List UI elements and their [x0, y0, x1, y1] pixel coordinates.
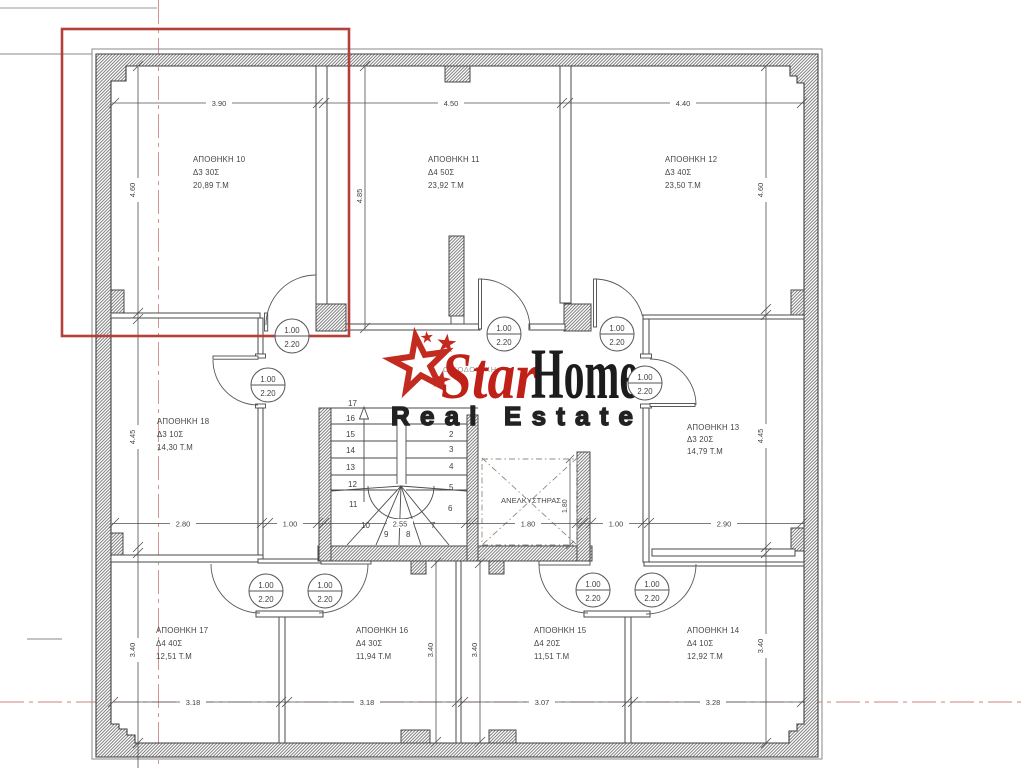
svg-text:Δ3 20Σ: Δ3 20Σ	[687, 435, 713, 444]
svg-text:2.20: 2.20	[637, 387, 653, 396]
svg-text:3.40: 3.40	[426, 643, 435, 657]
svg-text:5: 5	[449, 483, 454, 492]
svg-text:2: 2	[449, 430, 454, 439]
svg-text:1.00: 1.00	[585, 580, 601, 589]
svg-text:1.00: 1.00	[637, 373, 653, 382]
svg-text:Δ3 40Σ: Δ3 40Σ	[665, 168, 691, 177]
svg-text:7: 7	[431, 521, 436, 530]
svg-text:2.20: 2.20	[317, 595, 333, 604]
svg-text:Δ3 10Σ: Δ3 10Σ	[157, 430, 183, 439]
svg-text:2.20: 2.20	[496, 338, 512, 347]
svg-text:14,30 T.M: 14,30 T.M	[157, 443, 193, 452]
svg-text:6: 6	[448, 504, 453, 513]
svg-text:4.85: 4.85	[355, 189, 364, 203]
svg-text:2.80: 2.80	[176, 520, 190, 529]
svg-text:12,51 T.M: 12,51 T.M	[156, 652, 192, 661]
svg-text:14: 14	[346, 446, 355, 455]
svg-text:ΑΠΟΘΗΚΗ 11: ΑΠΟΘΗΚΗ 11	[428, 155, 480, 164]
svg-text:1.00: 1.00	[496, 324, 512, 333]
svg-text:1.80: 1.80	[521, 520, 535, 529]
svg-text:3.40: 3.40	[756, 639, 765, 653]
svg-text:ΑΠΟΘΗΚΗ 17: ΑΠΟΘΗΚΗ 17	[156, 626, 208, 635]
svg-text:3.18: 3.18	[360, 698, 374, 707]
svg-text:15: 15	[346, 430, 355, 439]
svg-text:3.28: 3.28	[706, 698, 720, 707]
svg-text:ΑΠΟΘΗΚΗ 16: ΑΠΟΘΗΚΗ 16	[356, 626, 408, 635]
svg-text:1.80: 1.80	[562, 499, 569, 513]
svg-text:4.60: 4.60	[756, 183, 765, 197]
svg-text:13: 13	[346, 463, 355, 472]
svg-text:11,51 T.M: 11,51 T.M	[534, 652, 569, 661]
svg-text:11: 11	[349, 500, 358, 509]
svg-text:Δ3 30Σ: Δ3 30Σ	[193, 168, 219, 177]
svg-text:4.45: 4.45	[128, 430, 137, 444]
svg-text:2.20: 2.20	[585, 594, 601, 603]
svg-text:2.20: 2.20	[260, 389, 276, 398]
svg-text:16: 16	[346, 414, 355, 423]
svg-text:Δ4 10Σ: Δ4 10Σ	[687, 639, 713, 648]
svg-text:12: 12	[348, 480, 357, 489]
svg-text:1.00: 1.00	[258, 581, 274, 590]
svg-text:20,89 T.M: 20,89 T.M	[193, 181, 229, 190]
svg-text:ΑΠΟΘΗΚΗ 10: ΑΠΟΘΗΚΗ 10	[193, 155, 246, 164]
svg-text:12,92 T.M: 12,92 T.M	[687, 652, 723, 661]
svg-text:10: 10	[361, 521, 370, 530]
svg-text:1.00: 1.00	[260, 375, 276, 384]
svg-text:4.60: 4.60	[128, 183, 137, 197]
svg-text:Δ4 40Σ: Δ4 40Σ	[156, 639, 182, 648]
svg-text:4.40: 4.40	[676, 99, 690, 108]
svg-text:2.20: 2.20	[644, 594, 660, 603]
svg-text:2.55: 2.55	[393, 520, 407, 529]
svg-text:2.20: 2.20	[284, 340, 300, 349]
svg-text:ΑΠΟΘΗΚΗ 18: ΑΠΟΘΗΚΗ 18	[157, 417, 209, 426]
svg-text:3.90: 3.90	[212, 99, 226, 108]
svg-text:1.00: 1.00	[609, 520, 623, 529]
svg-text:3.40: 3.40	[470, 643, 479, 657]
svg-text:1.00: 1.00	[609, 324, 625, 333]
svg-text:2.20: 2.20	[258, 595, 274, 604]
svg-text:1.00: 1.00	[317, 581, 333, 590]
svg-text:2.20: 2.20	[609, 338, 625, 347]
svg-text:8: 8	[406, 530, 411, 539]
svg-text:Δ4 20Σ: Δ4 20Σ	[534, 639, 560, 648]
svg-text:23,50 T.M: 23,50 T.M	[665, 181, 701, 190]
svg-text:Δ4 50Σ: Δ4 50Σ	[428, 168, 454, 177]
svg-text:2.90: 2.90	[717, 520, 731, 529]
svg-text:3.07: 3.07	[535, 698, 549, 707]
svg-text:1.00: 1.00	[283, 520, 297, 529]
svg-text:4: 4	[449, 462, 454, 471]
svg-text:11,94 T.M: 11,94 T.M	[356, 652, 391, 661]
svg-text:23,92 T.M: 23,92 T.M	[428, 181, 464, 190]
svg-text:ΑΠΟΘΗΚΗ 14: ΑΠΟΘΗΚΗ 14	[687, 626, 740, 635]
svg-text:ΑΠΟΘΗΚΗ 12: ΑΠΟΘΗΚΗ 12	[665, 155, 717, 164]
svg-text:1.00: 1.00	[644, 580, 660, 589]
svg-text:3.18: 3.18	[186, 698, 200, 707]
svg-text:Δ4 30Σ: Δ4 30Σ	[356, 639, 382, 648]
svg-text:4.50: 4.50	[444, 99, 458, 108]
svg-text:ΑΠΟΘΗΚΗ 13: ΑΠΟΘΗΚΗ 13	[687, 423, 739, 432]
svg-text:4.45: 4.45	[756, 429, 765, 443]
svg-text:ΑΝΕΛΚΥΣΤΗΡΑΣ: ΑΝΕΛΚΥΣΤΗΡΑΣ	[501, 496, 561, 505]
svg-text:ΑΠΟΘΗΚΗ 15: ΑΠΟΘΗΚΗ 15	[534, 626, 587, 635]
svg-text:1.00: 1.00	[284, 326, 300, 335]
svg-text:14,79 T.M: 14,79 T.M	[687, 447, 723, 456]
svg-text:9: 9	[384, 530, 389, 539]
svg-text:3: 3	[449, 445, 454, 454]
svg-text:17: 17	[348, 399, 357, 408]
svg-text:3.40: 3.40	[128, 643, 137, 657]
